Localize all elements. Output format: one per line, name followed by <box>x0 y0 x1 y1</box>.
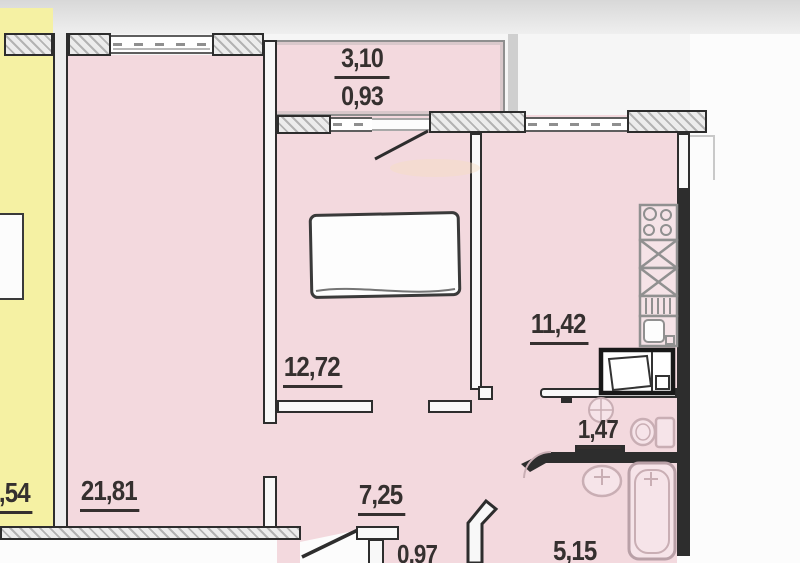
wall-bath-left <box>468 501 496 563</box>
bathtub-icon <box>629 463 675 559</box>
wall-hall-t-cap <box>356 526 399 540</box>
label-balcony: 3,10 0,93 <box>319 45 405 110</box>
sink-drainer-icon <box>640 296 677 316</box>
balcony-width-value: 3,10 <box>334 45 390 79</box>
label-bath-area: 5,15 <box>553 537 596 563</box>
label-closet-area: 0,97 <box>397 541 437 563</box>
light-smudge <box>390 159 480 177</box>
wall-hall-t-stem <box>368 539 384 563</box>
washbasin-icon <box>583 466 621 496</box>
bed <box>310 212 460 297</box>
label-wc-area: 1,47 <box>577 416 621 449</box>
toilet-icon <box>631 418 674 447</box>
kitchen-sink-icon <box>640 316 677 346</box>
floor-plan: 3,10 0,93 ,54 21,81 12,72 11,42 1,47 7,2… <box>0 0 800 563</box>
label-living-area: 21,81 <box>80 477 139 512</box>
label-kitchen-area: 11,42 <box>530 310 588 345</box>
balcony-area-value: 0,93 <box>319 79 405 110</box>
kitchen-cabinet-icon <box>640 240 677 296</box>
balcony-door <box>375 131 428 159</box>
label-bedroom-area: 12,72 <box>283 353 342 388</box>
label-hall-area: 7,25 <box>358 481 405 516</box>
label-neighbor-area: ,54 <box>0 479 32 514</box>
stove-icon <box>640 205 677 240</box>
refrigerator-icon <box>601 350 673 393</box>
